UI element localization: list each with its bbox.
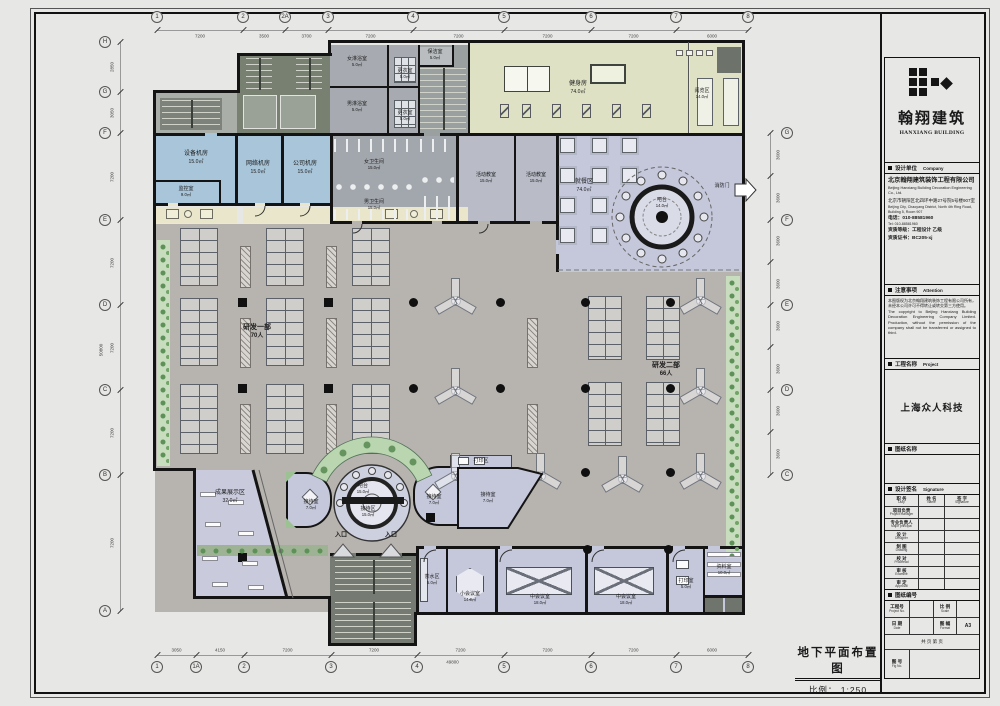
el-fr: 共 页 第 页	[885, 635, 979, 650]
dim-label: 49800	[446, 660, 459, 665]
room-area: 15.0㎡	[357, 489, 370, 494]
dim-label: 7200	[195, 34, 205, 39]
el-co-b: 资质证书：BC205-xj	[888, 236, 976, 243]
signature-cell: 姓 名Name	[919, 495, 945, 507]
field-date: 日 期Date	[885, 618, 910, 634]
room-area: 9.0㎡	[178, 192, 193, 197]
room-label: 更衣室5.0㎡	[397, 68, 412, 80]
room-label: 入口	[335, 532, 347, 540]
signature-cell: 设 计Designer	[885, 531, 919, 543]
signature-cell: 专业负责人Major principal	[885, 519, 919, 531]
drawing-el: 注意事项	[895, 286, 917, 294]
room-label: 小会议室14.0㎡	[460, 591, 480, 603]
grid-bubble: 1	[151, 11, 163, 23]
room-name: 公司机房	[293, 161, 317, 167]
drawing-el: Major principal	[891, 525, 912, 528]
grid-tick	[767, 472, 773, 478]
logo-text-en: HANXIANG BUILDING	[885, 130, 979, 136]
el-co-b: 电话：010-88581960	[888, 216, 976, 223]
room-label: 阅览区14.0㎡	[694, 88, 709, 100]
room-name: 消防门	[714, 183, 729, 189]
drawing-el	[888, 487, 892, 491]
drawing-el	[940, 77, 953, 90]
room-area: 7.0㎡	[426, 500, 441, 505]
room-label: 男卫生间15.0㎡	[364, 199, 384, 211]
room-label: 消防门	[714, 183, 729, 189]
dim-label: 7200	[110, 171, 115, 181]
room-label: 研发一部70人	[243, 324, 271, 340]
room-label: 设备机房15.0㎡	[184, 151, 208, 165]
room-area: 18.0㎡	[616, 600, 636, 605]
room-area: 5.0㎡	[347, 107, 367, 112]
grid-bubble: 4	[411, 661, 423, 673]
drawing-el	[919, 88, 927, 96]
room-area: 15.0㎡	[526, 178, 546, 183]
drawing-el	[888, 593, 892, 597]
signature-cell: 审 核Examine	[885, 567, 919, 579]
el-co-name: 北京翰翔建筑装饰工程有限公司	[888, 177, 976, 186]
room-name: 就餐区	[575, 179, 593, 185]
dim-label: 3600	[776, 278, 781, 288]
dim-label: 7200	[542, 648, 552, 653]
drawing-el	[888, 447, 892, 451]
logo-text-cn: 翰翔建筑	[885, 107, 979, 128]
grid-line	[120, 42, 121, 611]
room-label: 男淋浴室5.0㎡	[347, 101, 367, 113]
dim-label: 3600	[776, 321, 781, 331]
drawing-el: Examine	[895, 573, 907, 576]
grid-bubble: E	[781, 299, 793, 311]
drawing-scale: 比例： 1:250	[795, 684, 881, 696]
el-fr: 工程号Project No. 比 例Scale	[885, 601, 979, 618]
el-en: Signature	[923, 487, 944, 492]
company-info: 北京翰翔建筑装饰工程有限公司 Beijing Hanxiang Building…	[884, 173, 980, 285]
room-label: 活动教室15.0㎡	[476, 172, 496, 184]
drawing-el	[919, 78, 927, 86]
drawing-el: Designer	[895, 537, 908, 540]
drawing-title: 地下平面布置图	[795, 644, 881, 681]
room-area: 15.0㎡	[293, 169, 317, 175]
drawing-el: 图纸编号	[895, 591, 917, 599]
grid-bubble: 2	[237, 11, 249, 23]
dim-label: 7200	[110, 427, 115, 437]
grid-line	[157, 30, 748, 31]
room-label: 茶水区5.0㎡	[424, 574, 439, 586]
room-name: 研发二部	[652, 362, 680, 369]
room-name: 健身房	[569, 81, 587, 87]
room-label: 接待室7.0㎡	[426, 494, 441, 506]
grid-line	[157, 655, 748, 656]
drawing-el: Format	[940, 627, 950, 630]
field-project-no-value	[910, 601, 934, 617]
grid-tick	[745, 652, 751, 658]
room-label: 成果展示区32.0㎡	[215, 490, 245, 504]
dim-label: 7200	[369, 648, 379, 653]
room-label: 中会议室18.0㎡	[530, 594, 550, 606]
room-area: 15.0㎡	[364, 165, 384, 170]
signature-cell	[945, 555, 979, 567]
drawing-el: Project No.	[889, 610, 905, 613]
drawing-el: 北京市朝阳区北四环中路27号院5号楼907室	[888, 198, 976, 204]
grid-bubble: 2	[238, 661, 250, 673]
dim-label: 7200	[282, 648, 292, 653]
grid-bubble: 6	[585, 661, 597, 673]
dim-label: 2850	[110, 62, 115, 72]
signature-cell: 项目负责Project manager	[885, 507, 919, 519]
room-area: 14.0㎡	[460, 597, 480, 602]
room-area: 5.0㎡	[427, 55, 442, 60]
signature-cell: 签 字Signature	[945, 495, 979, 507]
grid-bubble: F	[781, 214, 793, 226]
room-area: 15.0㎡	[476, 178, 496, 183]
room-label: 健身房74.0㎡	[569, 81, 587, 95]
dim-label: 7200	[628, 34, 638, 39]
drawing-el: 设计单位	[895, 164, 917, 172]
company-logo: 翰翔建筑 HANXIANG BUILDING	[884, 57, 980, 163]
drawing-el: Approval	[895, 585, 908, 588]
room-label: 女淋浴室5.0㎡	[347, 56, 367, 68]
grid-bubble: 1	[151, 661, 163, 673]
room-label: 入口	[385, 532, 397, 540]
dim-label: 3500	[259, 34, 269, 39]
drawing-name-box	[884, 454, 980, 484]
grid-bubble: G	[99, 86, 111, 98]
room-label: 研发二部66人	[652, 362, 680, 378]
signature-cell	[919, 567, 945, 579]
grid-bubble: D	[99, 299, 111, 311]
room-area: 5.0㎡	[397, 74, 412, 79]
field-format-value: A3	[957, 618, 979, 634]
drawing-el: Fig No.	[892, 665, 902, 668]
drawing-el	[888, 362, 892, 366]
field-fig-no-value	[910, 650, 979, 678]
dim-label: 3600	[776, 149, 781, 159]
dim-label: 3600	[776, 363, 781, 373]
room-label: 就餐区74.0㎡	[575, 179, 593, 193]
drawing-el	[888, 288, 892, 292]
dim-label: 7200	[110, 538, 115, 548]
field-project-no: 工程号Project No.	[885, 601, 910, 617]
el-en: Attention	[923, 288, 943, 293]
dim-label: 7200	[110, 342, 115, 352]
el-co-sm: Tel: 010-88581960	[888, 222, 976, 227]
dim-label: 3600	[776, 448, 781, 458]
room-label: 打印区	[473, 458, 488, 464]
room-area: 18.0㎡	[530, 600, 550, 605]
grid-bubble: F	[99, 127, 111, 139]
field-date-value	[910, 618, 934, 634]
grid-bubble: A	[99, 605, 111, 617]
room-label: 打印室5.0㎡	[678, 578, 693, 590]
signature-cell: 校 对Proofread	[885, 555, 919, 567]
room-label: 吧台14.0㎡	[656, 197, 669, 209]
drawing-sheet: 设备机房15.0㎡监控室9.0㎡网络机房15.0㎡公司机房15.0㎡女淋浴室5.…	[0, 0, 1000, 706]
dim-label: 7200	[453, 34, 463, 39]
grid-bubble: D	[781, 384, 793, 396]
drawing-el: Signature	[955, 501, 969, 504]
field-scale: 比 例Scale	[934, 601, 957, 617]
room-label: 女卫生间15.0㎡	[364, 159, 384, 171]
el-fr: 日 期Date 图 幅Format A3	[885, 618, 979, 635]
signature-table: 职 务Duty姓 名Name签 字Signature项目负责Project ma…	[884, 494, 980, 590]
grid-bubble: G	[781, 127, 793, 139]
room-area: 5.0㎡	[424, 580, 439, 585]
floor-plan: 设备机房15.0㎡监控室9.0㎡网络机房15.0㎡公司机房15.0㎡女淋浴室5.…	[0, 0, 1000, 706]
grid-bubble: 1A	[190, 661, 202, 673]
grid-bubble: 4	[407, 11, 419, 23]
room-area: 32.0㎡	[215, 498, 245, 504]
grid-bubble: 8	[742, 661, 754, 673]
room-label: 监控室9.0㎡	[178, 186, 193, 198]
room-label: 中会议室18.0㎡	[616, 594, 636, 606]
signature-cell	[919, 543, 945, 555]
attention-text: 本图版权为北京翰翔建筑装饰工程有限公司所有，未经本公司许可不得转让或转交第三方使…	[884, 295, 980, 359]
drawing-el: Proofread	[895, 561, 909, 564]
drawing-el: 工程名称	[895, 360, 917, 368]
field-format: 图 幅Format	[934, 618, 957, 634]
title-block: 翰翔建筑 HANXIANG BUILDING 设计单位Company 北京翰翔建…	[884, 57, 980, 694]
room-label: 网络机房15.0㎡	[246, 161, 270, 175]
field-pages: 共 页 第 页	[885, 635, 979, 649]
signature-cell	[945, 507, 979, 519]
el-co-sm: Beijing City, Chaoyang District, North 4…	[888, 205, 976, 215]
grid-bubble: 5	[498, 11, 510, 23]
el-fr: 图 号Fig No.	[885, 650, 979, 678]
signature-cell	[919, 507, 945, 519]
grid-bubble: 5	[498, 661, 510, 673]
drawing-el	[909, 78, 917, 86]
drawing-el	[919, 68, 927, 76]
room-label: 公司机房15.0㎡	[293, 161, 317, 175]
dim-label: 7200	[542, 34, 552, 39]
room-area: 14.0㎡	[694, 94, 709, 99]
project-name: 上海众人科技	[884, 369, 980, 444]
drawing-el	[909, 88, 917, 96]
grid-bubble: 2A	[279, 11, 291, 23]
room-area: 15.0㎡	[184, 159, 208, 165]
signature-cell	[919, 555, 945, 567]
grid-tick	[117, 608, 123, 614]
grid-bubble: 6	[585, 11, 597, 23]
dim-label: 7200	[110, 257, 115, 267]
field-fig-no: 图 号Fig No.	[885, 650, 910, 678]
dim-label: 7200	[455, 648, 465, 653]
room-name: 网络机房	[246, 161, 270, 167]
hanxiang-logo-icon	[909, 68, 955, 98]
signature-cell	[945, 567, 979, 579]
grid-bubble: 7	[670, 11, 682, 23]
grid-bubble: H	[99, 36, 111, 48]
drawing-el: Scale	[941, 610, 949, 613]
drawing-el	[931, 78, 939, 86]
grid-bubble: E	[99, 214, 111, 226]
room-area: 74.0㎡	[575, 187, 593, 193]
grid-bubble: 8	[742, 11, 754, 23]
dim-label: 4150	[215, 648, 225, 653]
dim-label: 3600	[776, 193, 781, 203]
room-area: 66人	[652, 371, 680, 378]
signature-cell	[919, 531, 945, 543]
el-co-en: Beijing Hanxiang Building Decoration Eng…	[888, 186, 976, 197]
dim-label: 3600	[776, 406, 781, 416]
drawing-el	[909, 68, 917, 76]
grid-bubble: 7	[670, 661, 682, 673]
drawing-caption: 地下平面布置图 比例： 1:250	[795, 644, 881, 696]
room-label: 吧台15.0㎡	[357, 483, 370, 495]
el-en: Project	[923, 362, 938, 367]
dim-label: 6000	[707, 34, 717, 39]
room-name: 设备机房	[184, 151, 208, 157]
dim-label: 3050	[171, 648, 181, 653]
drawing-el: 设计签名	[895, 485, 917, 493]
room-name: 研发一部	[243, 324, 271, 331]
grid-bubble: 3	[325, 661, 337, 673]
room-label: 活动教室15.0㎡	[526, 172, 546, 184]
dim-label: 7200	[365, 34, 375, 39]
room-area: 7.0㎡	[480, 498, 495, 503]
room-area: 14.0㎡	[656, 203, 669, 208]
drawing-el	[888, 166, 892, 170]
room-area: 5.0㎡	[397, 116, 412, 121]
dim-label: 3600	[776, 236, 781, 246]
room-label: 接待室7.0㎡	[303, 499, 318, 511]
room-area: 74.0㎡	[569, 89, 587, 95]
drawing-el: The copyright to Beijing Hanxiang Buildi…	[888, 309, 976, 336]
drawing-el: 本图版权为北京翰翔建筑装饰工程有限公司所有，未经本公司许可不得转让或转交第三方使…	[888, 298, 976, 309]
drawing-el: 职 务Duty姓 名Name签 字Signature项目负责Project ma…	[885, 495, 979, 591]
drawing-el: Name	[927, 501, 936, 504]
el-co-b: 资质等级：工程设计 乙级	[888, 228, 976, 235]
field-scale-value	[957, 601, 979, 617]
room-name: 入口	[335, 532, 347, 538]
title-fields: 工程号Project No. 比 例Scale 日 期Date 图 幅Forma…	[884, 600, 980, 679]
signature-cell	[945, 519, 979, 531]
grid-bubble: 3	[322, 11, 334, 23]
room-area: 10.0㎡	[716, 570, 731, 575]
signature-cell: 制 图Drawing	[885, 543, 919, 555]
signature-cell	[945, 531, 979, 543]
signature-cell	[919, 519, 945, 531]
signature-cell	[945, 543, 979, 555]
room-label: 接待区15.0㎡	[360, 506, 375, 518]
room-label: 保洁室5.0㎡	[427, 49, 442, 61]
drawing-el: Date	[894, 627, 901, 630]
room-area: 5.0㎡	[678, 584, 693, 589]
room-area: 15.0㎡	[246, 169, 270, 175]
room-name: 入口	[385, 532, 397, 538]
room-area: 70人	[243, 333, 271, 340]
room-name: 成果展示区	[215, 490, 245, 496]
el-en: Company	[923, 166, 944, 171]
dim-label: 50800	[99, 344, 104, 357]
room-name: 打印区	[473, 458, 488, 464]
grid-bubble: B	[99, 469, 111, 481]
drawing-el: 图纸名称	[895, 445, 917, 453]
room-label: 更衣室5.0㎡	[397, 110, 412, 122]
room-label: 资料室10.0㎡	[716, 564, 731, 576]
drawing-el: Duty	[898, 501, 905, 504]
room-label: 接待室7.0㎡	[480, 492, 495, 504]
grid-bubble: C	[781, 469, 793, 481]
room-area: 7.0㎡	[303, 505, 318, 510]
dim-label: 7200	[628, 648, 638, 653]
room-area: 15.0㎡	[364, 205, 384, 210]
room-area: 15.0㎡	[360, 512, 375, 517]
dim-label: 6000	[707, 648, 717, 653]
grid-tick	[745, 27, 751, 33]
signature-cell: 职 务Duty	[885, 495, 919, 507]
grid-bubble: C	[99, 384, 111, 396]
drawing-el: Drawing	[896, 549, 908, 552]
drawing-el: Project manager	[890, 513, 913, 516]
plan-label-layer: 设备机房15.0㎡监控室9.0㎡网络机房15.0㎡公司机房15.0㎡女淋浴室5.…	[0, 0, 1000, 706]
dim-label: 3700	[301, 34, 311, 39]
room-area: 5.0㎡	[347, 62, 367, 67]
dim-label: 3050	[110, 107, 115, 117]
